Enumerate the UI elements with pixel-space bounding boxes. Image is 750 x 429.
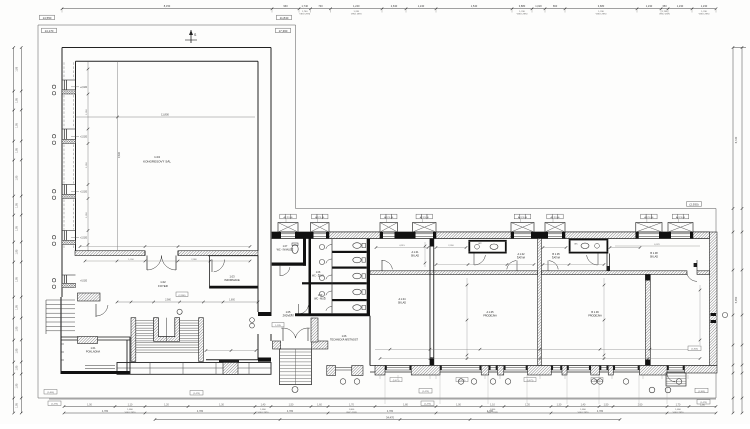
svg-text:1,20: 1,20 bbox=[164, 403, 169, 406]
svg-text:1,70: 1,70 bbox=[349, 403, 354, 406]
svg-text:3,880: 3,880 bbox=[519, 4, 526, 8]
svg-text:14,550: 14,550 bbox=[43, 16, 52, 20]
svg-text:11,840: 11,840 bbox=[280, 16, 289, 20]
svg-text:34,470: 34,470 bbox=[386, 415, 394, 419]
svg-text:1,800: 1,800 bbox=[349, 409, 355, 411]
svg-text:1,240: 1,240 bbox=[353, 4, 360, 8]
svg-text:A2 P3 06: A2 P3 06 bbox=[315, 216, 325, 219]
svg-text:1,20: 1,20 bbox=[525, 403, 530, 406]
svg-text:VIKO 2970: VIKO 2970 bbox=[346, 412, 357, 414]
svg-text:1,80: 1,80 bbox=[403, 403, 408, 406]
svg-text:350: 350 bbox=[662, 4, 667, 8]
svg-text:1,800: 1,800 bbox=[229, 300, 235, 302]
svg-text:(1,475): (1,475) bbox=[422, 391, 429, 393]
svg-text:4,780: 4,780 bbox=[487, 410, 494, 413]
svg-text:(1,475): (1,475) bbox=[459, 380, 466, 382]
svg-text:1,240: 1,240 bbox=[418, 4, 425, 8]
svg-text:1,50: 1,50 bbox=[604, 403, 609, 406]
svg-text:(1,475): (1,475) bbox=[393, 380, 400, 382]
svg-text:1,30: 1,30 bbox=[219, 403, 224, 406]
svg-text:FOYER: FOYER bbox=[158, 284, 168, 288]
svg-text:WC - INVALIDÉ: WC - INVALIDÉ bbox=[277, 248, 294, 251]
svg-text:(1,305): (1,305) bbox=[691, 349, 698, 351]
svg-text:1,740: 1,740 bbox=[662, 11, 668, 13]
svg-text:1,95: 1,95 bbox=[16, 98, 19, 103]
svg-text:1,10: 1,10 bbox=[128, 403, 133, 406]
svg-text:1,95: 1,95 bbox=[16, 226, 19, 231]
svg-text:4,515: 4,515 bbox=[399, 245, 405, 247]
svg-text:9,600: 9,600 bbox=[118, 151, 121, 158]
svg-text:A2 P3 06: A2 P3 06 bbox=[420, 216, 430, 219]
svg-text:1,95: 1,95 bbox=[16, 403, 19, 408]
svg-text:VIKO 2970: VIKO 2970 bbox=[125, 412, 136, 414]
svg-text:11,800: 11,800 bbox=[161, 113, 169, 117]
svg-text:1,95: 1,95 bbox=[16, 348, 19, 353]
svg-text:1,740: 1,740 bbox=[302, 11, 308, 13]
svg-text:960: 960 bbox=[283, 4, 288, 8]
svg-text:SKLAD: SKLAD bbox=[411, 255, 419, 258]
svg-text:2,630: 2,630 bbox=[391, 4, 398, 8]
svg-text:1,800: 1,800 bbox=[580, 409, 586, 411]
svg-text:1,950: 1,950 bbox=[86, 161, 88, 167]
svg-text:4,780: 4,780 bbox=[387, 410, 394, 413]
svg-text:1,195: 1,195 bbox=[275, 325, 281, 327]
svg-text:A2 P3 06: A2 P3 06 bbox=[551, 216, 561, 219]
svg-text:4,780: 4,780 bbox=[287, 410, 294, 413]
svg-text:WC: WC bbox=[574, 244, 578, 246]
svg-text:1.09: 1.09 bbox=[318, 295, 323, 297]
svg-text:SKLAD: SKLAD bbox=[650, 256, 658, 259]
svg-text:+2,020: +2,020 bbox=[80, 136, 88, 138]
svg-text:1,95: 1,95 bbox=[16, 249, 19, 254]
svg-text:(1,475): (1,475) bbox=[700, 402, 707, 404]
svg-text:+0,020: +0,020 bbox=[80, 280, 88, 282]
svg-text:1,00: 1,00 bbox=[456, 403, 461, 406]
svg-text:A2 P3 06: A2 P3 06 bbox=[644, 216, 654, 219]
svg-text:(1,475): (1,475) bbox=[193, 393, 200, 395]
svg-text:PRODEJNA: PRODEJNA bbox=[588, 315, 602, 318]
svg-text:1,95: 1,95 bbox=[16, 123, 19, 128]
svg-text:1,540: 1,540 bbox=[471, 4, 478, 8]
svg-text:1,800: 1,800 bbox=[127, 409, 133, 411]
svg-text:660: 660 bbox=[553, 4, 558, 8]
svg-text:+2,020: +2,020 bbox=[80, 87, 88, 89]
svg-text:(1,475): (1,475) bbox=[527, 380, 534, 382]
svg-text:PRODEJNA: PRODEJNA bbox=[483, 315, 497, 318]
svg-text:A2 P3 06: A2 P3 06 bbox=[518, 216, 528, 219]
svg-text:4,780: 4,780 bbox=[597, 410, 604, 413]
svg-text:1,95: 1,95 bbox=[16, 203, 19, 208]
svg-text:(1,400): (1,400) bbox=[47, 392, 54, 394]
svg-text:5,050: 5,050 bbox=[734, 296, 738, 303]
svg-text:(1,475): (1,475) bbox=[424, 404, 431, 406]
svg-text:KONGRESOVÝ SÁL: KONGRESOVÝ SÁL bbox=[143, 160, 171, 164]
svg-text:1,30: 1,30 bbox=[557, 403, 562, 406]
svg-text:1.03: 1.03 bbox=[229, 275, 235, 279]
svg-text:(1,305): (1,305) bbox=[698, 391, 705, 393]
svg-text:WC: WC bbox=[478, 243, 482, 245]
svg-text:INFORMACE: INFORMACE bbox=[224, 278, 240, 282]
svg-text:14,170: 14,170 bbox=[45, 29, 54, 33]
svg-text:1,740: 1,740 bbox=[519, 11, 525, 13]
svg-text:1,95: 1,95 bbox=[16, 148, 19, 153]
svg-text:VIKO 2970: VIKO 2970 bbox=[351, 14, 362, 16]
svg-text:1,95: 1,95 bbox=[16, 383, 19, 388]
svg-text:1,10: 1,10 bbox=[490, 403, 495, 406]
svg-text:1.08: 1.08 bbox=[316, 272, 321, 274]
svg-text:3,680: 3,680 bbox=[598, 4, 605, 8]
svg-text:(2,930): (2,930) bbox=[689, 202, 698, 206]
svg-text:1,020: 1,020 bbox=[535, 4, 542, 8]
svg-text:SKLAD: SKLAD bbox=[398, 302, 406, 305]
svg-text:1,950: 1,950 bbox=[86, 108, 88, 114]
svg-text:1,40: 1,40 bbox=[581, 403, 586, 406]
svg-text:A2 P3 06: A2 P3 06 bbox=[284, 216, 294, 219]
svg-text:VIKO 2970: VIKO 2970 bbox=[299, 14, 310, 16]
svg-text:WC - MUŽI: WC - MUŽI bbox=[314, 297, 326, 300]
svg-text:1,95: 1,95 bbox=[16, 305, 19, 310]
svg-text:1,740: 1,740 bbox=[302, 4, 309, 8]
svg-text:1,60: 1,60 bbox=[638, 403, 643, 406]
svg-text:(2,930): (2,930) bbox=[179, 295, 186, 297]
svg-text:1,800: 1,800 bbox=[675, 409, 681, 411]
svg-text:1,740: 1,740 bbox=[354, 11, 360, 13]
svg-text:17,360: 17,360 bbox=[279, 29, 288, 33]
svg-text:VIKO 2970: VIKO 2970 bbox=[699, 14, 710, 16]
svg-text:4,780: 4,780 bbox=[197, 410, 204, 413]
svg-text:ŠATNA: ŠATNA bbox=[552, 257, 560, 260]
svg-text:1,00: 1,00 bbox=[87, 403, 92, 406]
svg-text:A2 P3 06: A2 P3 06 bbox=[676, 216, 686, 219]
svg-text:4,780: 4,780 bbox=[102, 410, 109, 413]
svg-text:2,980: 2,980 bbox=[165, 300, 171, 302]
svg-text:WC - ŽENY: WC - ŽENY bbox=[312, 274, 324, 277]
svg-text:+2,020: +2,020 bbox=[80, 191, 88, 193]
svg-text:8,150: 8,150 bbox=[164, 4, 171, 8]
svg-text:1,70: 1,70 bbox=[676, 403, 681, 406]
svg-text:A2 P3 06: A2 P3 06 bbox=[384, 216, 394, 219]
svg-text:1,800: 1,800 bbox=[260, 409, 266, 411]
svg-text:VIKO 2970: VIKO 2970 bbox=[258, 412, 269, 414]
svg-text:1,740: 1,740 bbox=[598, 11, 604, 13]
svg-text:2,260: 2,260 bbox=[448, 245, 454, 247]
svg-text:1.04: 1.04 bbox=[154, 155, 160, 159]
svg-text:1,95: 1,95 bbox=[16, 175, 19, 180]
svg-text:1,40: 1,40 bbox=[261, 403, 266, 406]
svg-text:VIKO 2970: VIKO 2970 bbox=[596, 14, 607, 16]
svg-text:+2,020: +2,020 bbox=[80, 237, 88, 239]
svg-text:ŠATNA: ŠATNA bbox=[517, 257, 525, 260]
svg-text:1,200: 1,200 bbox=[128, 259, 134, 261]
svg-text:1,60: 1,60 bbox=[317, 403, 322, 406]
svg-text:1,50: 1,50 bbox=[289, 403, 294, 406]
svg-text:1,230: 1,230 bbox=[701, 4, 708, 8]
svg-text:VIKO 2970: VIKO 2970 bbox=[578, 412, 589, 414]
svg-text:1,230: 1,230 bbox=[646, 4, 653, 8]
svg-text:6,720: 6,720 bbox=[734, 136, 738, 143]
svg-text:1,950: 1,950 bbox=[86, 211, 88, 217]
svg-text:1,95: 1,95 bbox=[16, 66, 19, 71]
svg-text:1.01: 1.01 bbox=[90, 346, 96, 350]
svg-text:POKLADNA: POKLADNA bbox=[86, 350, 100, 354]
svg-text:1,230: 1,230 bbox=[677, 4, 684, 8]
svg-text:(1,475): (1,475) bbox=[51, 404, 58, 406]
svg-text:ZÁDVEŘÍ: ZÁDVEŘÍ bbox=[283, 315, 294, 318]
svg-text:TECHNICKÁ MÍSTNOST: TECHNICKÁ MÍSTNOST bbox=[330, 339, 359, 342]
svg-text:VIKO 2970: VIKO 2970 bbox=[517, 14, 528, 16]
svg-text:1,95: 1,95 bbox=[16, 277, 19, 282]
svg-text:1,740: 1,740 bbox=[701, 11, 707, 13]
svg-text:1,95: 1,95 bbox=[16, 326, 19, 331]
svg-text:6,370: 6,370 bbox=[654, 244, 660, 246]
svg-text:VIKO 2970: VIKO 2970 bbox=[659, 14, 670, 16]
svg-text:VIKO 2970: VIKO 2970 bbox=[673, 412, 684, 414]
svg-text:2,980: 2,980 bbox=[191, 259, 197, 261]
svg-text:1,95: 1,95 bbox=[16, 365, 19, 370]
svg-text:730: 730 bbox=[318, 4, 323, 8]
